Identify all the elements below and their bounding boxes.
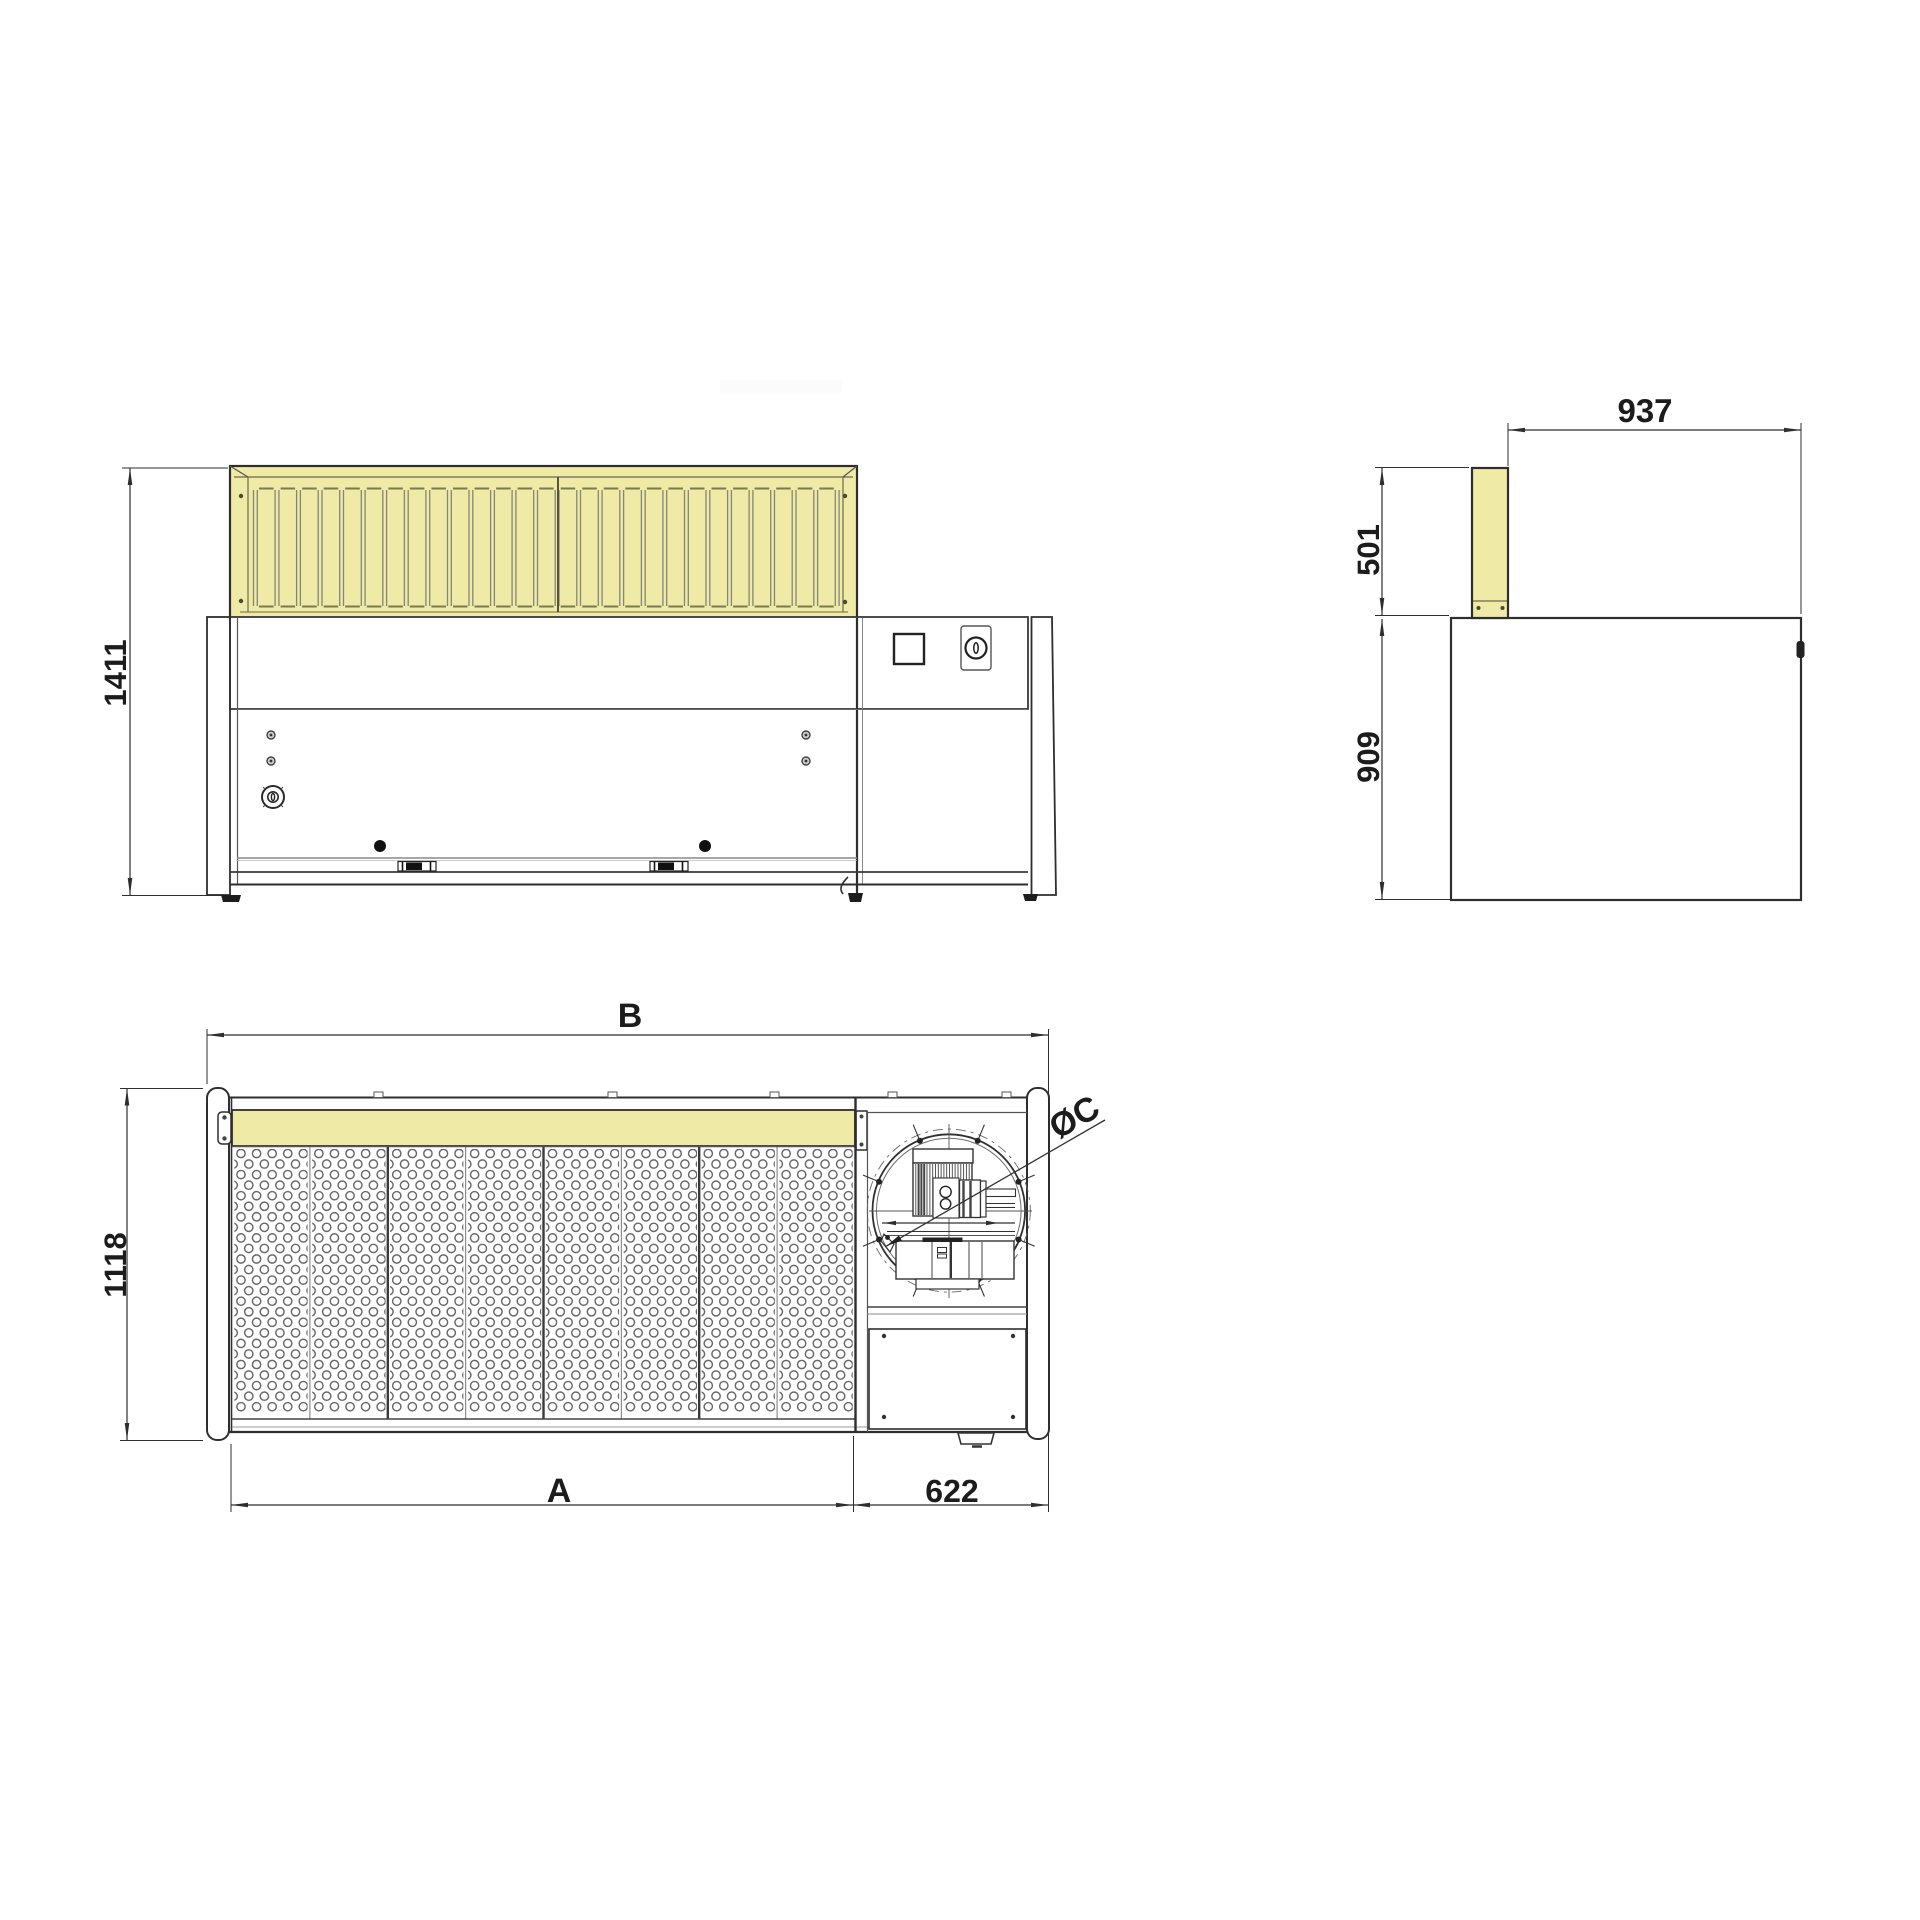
- svg-text:501: 501: [1351, 524, 1386, 576]
- svg-text:B: B: [618, 997, 643, 1035]
- svg-text:1411: 1411: [98, 639, 133, 706]
- svg-text:909: 909: [1351, 731, 1386, 783]
- svg-text:A: A: [547, 1472, 572, 1510]
- svg-text:622: 622: [925, 1473, 978, 1509]
- svg-text:937: 937: [1617, 392, 1672, 429]
- svg-text:1118: 1118: [98, 1232, 133, 1298]
